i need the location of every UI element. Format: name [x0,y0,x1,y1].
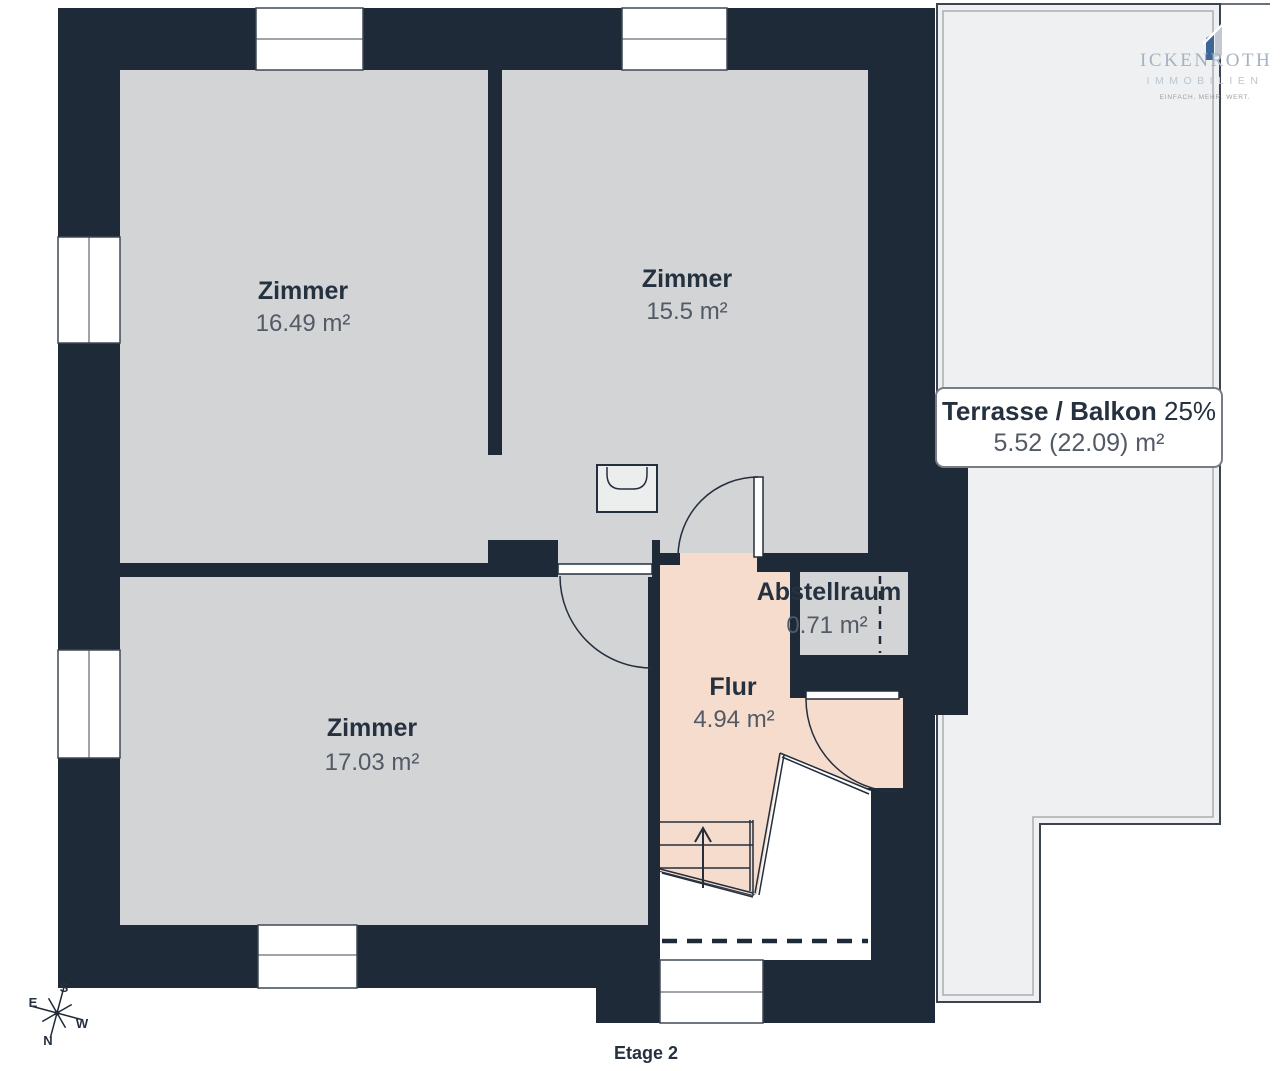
hallway-name: Flur [709,673,756,702]
logo-name: ICKENROTH [1140,50,1270,72]
logo-tagline: EINFACH. MEHR. WERT. [1140,94,1270,101]
terrace-area [937,4,1270,1002]
window-top-left [256,8,363,70]
compass-north: N [43,1033,52,1048]
compass-icon: S E W N [12,972,112,1062]
compass-east: E [29,995,38,1010]
terrace-name: Terrasse / Balkon [942,396,1157,426]
compass-south: S [60,980,69,995]
terrace-label-box: Terrasse / Balkon 25% 5.52 (22.09) m² [935,387,1223,468]
room2-area: 15.5 m² [646,298,727,326]
room1-name: Zimmer [258,277,348,306]
floor-caption: Etage 2 [614,1043,678,1064]
window-bottom-left [258,925,357,988]
window-left-lower [58,650,120,758]
room1-area: 16.49 m² [256,310,351,338]
terrace-percent: 25% [1164,396,1216,426]
storage-name: Abstellraum [757,578,901,607]
fixture-icon [597,465,657,512]
room3-name: Zimmer [327,714,417,743]
terrace-area-value: 5.52 (22.09) m² [941,429,1217,458]
room3-area: 17.03 m² [325,749,420,777]
hallway-area: 4.94 m² [693,706,774,734]
window-bottom-middle [660,960,763,1023]
window-left-upper [58,237,120,343]
logo-subtitle: IMMOBILIEN [1140,75,1270,87]
floorplan-page: Zimmer 16.49 m² Zimmer 15.5 m² Zimmer 17… [0,0,1280,1071]
window-top-right [622,8,727,70]
compass-west: W [76,1016,89,1031]
storage-area: 0.71 m² [786,612,867,640]
company-logo: ICKENROTH IMMOBILIEN EINFACH. MEHR. WERT… [1140,50,1270,101]
terrace-title: Terrasse / Balkon 25% [941,396,1217,427]
room2-name: Zimmer [642,265,732,294]
floorplan-canvas [0,0,1280,1071]
